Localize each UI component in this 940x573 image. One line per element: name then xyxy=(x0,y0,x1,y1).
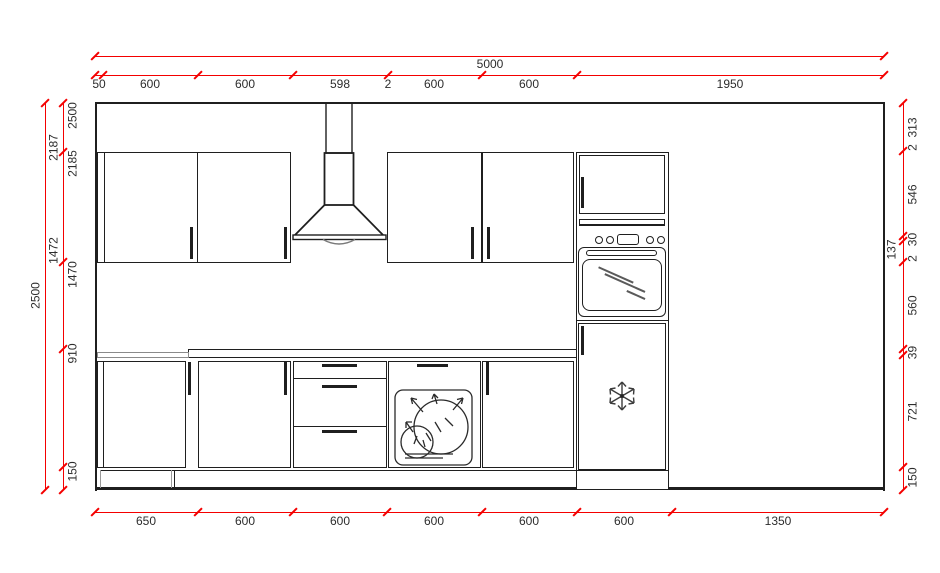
dim-right-seg-137: 137 xyxy=(886,230,899,270)
oven-vent-trim xyxy=(579,219,665,226)
plinth-seam-left xyxy=(171,470,172,488)
oven-handle xyxy=(586,250,657,256)
right-wall-line xyxy=(883,102,885,491)
base-cabinet-5-handle xyxy=(486,362,489,395)
dim-bottom-seg-650: 650 xyxy=(121,515,171,528)
dim-bottom-seg-600b: 600 xyxy=(320,515,360,528)
wall-cabinet-1-handle xyxy=(190,227,193,259)
dim-line-left-ordinates xyxy=(63,103,64,490)
dim-bottom-seg-600c: 600 xyxy=(414,515,454,528)
dim-bottom-seg-1350: 1350 xyxy=(748,515,808,528)
dim-left-ord-910: 910 xyxy=(67,334,80,374)
dim-line-bottom-chain xyxy=(95,512,884,513)
wall-cabinet-4-handle xyxy=(487,227,490,259)
dishwasher-handle xyxy=(417,364,448,367)
wall-cabinet-2-handle xyxy=(284,227,287,259)
drawer-divider-2 xyxy=(294,426,386,427)
dim-top-seg-600b: 600 xyxy=(225,78,265,91)
dim-tick xyxy=(879,70,888,79)
dim-top-overall: 5000 xyxy=(460,58,520,71)
dim-tick xyxy=(40,485,49,494)
dim-right-seg-2b: 2 xyxy=(907,239,920,279)
worktop xyxy=(188,349,577,358)
snowflake-icon xyxy=(605,379,639,413)
worktop-left-section xyxy=(97,352,189,358)
base-cabinet-5 xyxy=(482,361,574,468)
dim-top-seg-600c: 600 xyxy=(414,78,454,91)
floor-line xyxy=(95,487,885,490)
dim-left-ord-2500: 2500 xyxy=(67,96,80,136)
dim-top-seg-598: 598 xyxy=(320,78,360,91)
dim-line-right-chain xyxy=(903,103,904,490)
dim-left-ord-2185: 2185 xyxy=(67,144,80,184)
oven-glass xyxy=(582,259,662,311)
tall-unit-divider xyxy=(577,320,668,321)
base-cabinet-2-handle xyxy=(284,362,287,395)
wall-cabinet-3 xyxy=(387,152,482,263)
dim-right-seg-150: 150 xyxy=(907,458,920,498)
dim-right-seg-721: 721 xyxy=(907,392,920,432)
dim-right-seg-546: 546 xyxy=(907,175,920,215)
drawer-handle-3 xyxy=(322,430,357,433)
base-cabinet-1-handle xyxy=(188,362,191,395)
ceiling-line xyxy=(95,102,884,104)
dishwasher-plates-icon xyxy=(393,388,475,468)
dim-left-ord-1472: 1472 xyxy=(48,231,61,271)
dim-top-seg-2: 2 xyxy=(378,78,398,91)
dim-right-seg-39: 39 xyxy=(907,333,920,373)
dim-right-seg-2a: 2 xyxy=(907,128,920,168)
oven-display xyxy=(617,234,639,245)
tall-unit-top-door xyxy=(579,155,665,214)
dim-tick xyxy=(879,51,888,60)
dim-left-overall: 2500 xyxy=(30,276,43,316)
dim-top-seg-1950: 1950 xyxy=(705,78,755,91)
base-cabinet-2 xyxy=(198,361,291,468)
dim-top-seg-600a: 600 xyxy=(130,78,170,91)
oven-knob-2 xyxy=(606,236,614,244)
dim-left-ord-2187: 2187 xyxy=(48,128,61,168)
plinth-edge-left xyxy=(100,470,101,488)
wall-cabinet-1 xyxy=(104,152,198,263)
freezer-handle xyxy=(581,326,584,355)
wall-cabinet-2 xyxy=(197,152,291,263)
tall-unit-top-handle xyxy=(581,177,584,208)
base-cabinet-1 xyxy=(103,361,186,468)
wall-cabinet-3-handle xyxy=(471,227,474,259)
oven-knob-4 xyxy=(657,236,665,244)
dim-top-seg-50: 50 xyxy=(84,78,114,91)
oven-knob-1 xyxy=(595,236,603,244)
drawer-handle-1 xyxy=(322,364,357,367)
dim-top-seg-600d: 600 xyxy=(509,78,549,91)
kitchen-elevation-canvas: 5000 50 600 600 598 2 600 600 1950 650 6… xyxy=(0,0,940,573)
dim-tick xyxy=(879,507,888,516)
wall-cabinet-4 xyxy=(482,152,574,263)
dim-line-left-overall xyxy=(45,103,46,490)
cooker-hood-icon xyxy=(290,100,390,250)
dim-right-seg-560: 560 xyxy=(907,286,920,326)
plinth-line xyxy=(100,470,668,471)
plinth-seam xyxy=(174,470,175,488)
dim-bottom-seg-600e: 600 xyxy=(604,515,644,528)
oven-knob-3 xyxy=(646,236,654,244)
dim-left-ord-1470: 1470 xyxy=(67,255,80,295)
dim-bottom-seg-600a: 600 xyxy=(225,515,265,528)
dim-line-top-chain xyxy=(95,75,884,76)
drawer-handle-2 xyxy=(322,385,357,388)
dim-left-ord-150: 150 xyxy=(67,452,80,492)
drawer-divider-1 xyxy=(294,378,386,379)
dim-bottom-seg-600d: 600 xyxy=(509,515,549,528)
